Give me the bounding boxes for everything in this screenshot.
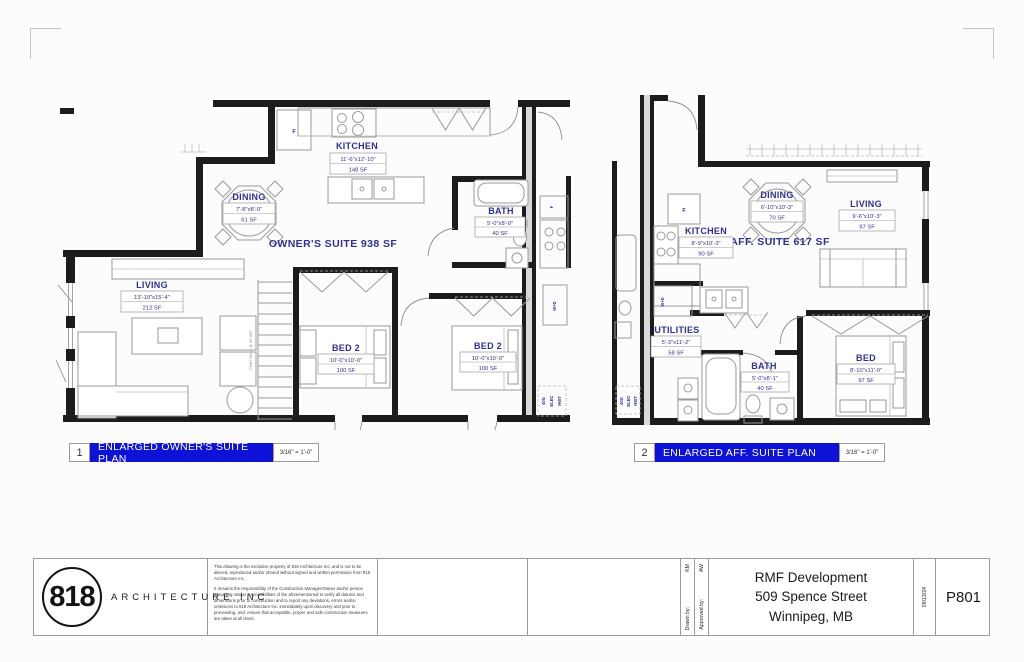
- svg-text:70 SF: 70 SF: [769, 216, 785, 222]
- sheet-number: P801: [946, 589, 981, 606]
- svg-text:KITCHEN: KITCHEN: [336, 141, 378, 151]
- svg-text:ELEC: ELEC: [549, 395, 554, 406]
- plan2-scale: 3/16" = 1'-0": [839, 443, 885, 462]
- room-label-kitchen: KITCHEN 11'-6"x12'-10" 148 SF: [330, 141, 386, 174]
- project-name: RMF Development: [755, 568, 868, 588]
- room-label-living: LIVING 13'-10"x15'-4" 212 SF: [121, 280, 183, 312]
- issue-date: 09/13/24: [922, 587, 928, 607]
- svg-text:KITCHEN: KITCHEN: [685, 226, 727, 236]
- svg-text:10'-0"x10'-0": 10'-0"x10'-0": [330, 358, 362, 364]
- suite-label: AFF. SUITE 617 SF: [730, 236, 830, 248]
- room-label-dining: DINING 6'-10"x10'-3" 70 SF: [751, 190, 803, 222]
- approved-by-cell: AW Approved by:: [695, 559, 709, 635]
- plan2-title: ENLARGED AFF. SUITE PLAN: [655, 443, 839, 462]
- plan1-title: ENLARGED OWNER'S SUITE PLAN: [90, 443, 273, 462]
- svg-text:10'-0"x10'-0": 10'-0"x10'-0": [472, 356, 504, 362]
- corner-mark-top-right: [963, 28, 994, 59]
- svg-text:F: F: [549, 205, 554, 208]
- revision-cell-1: [378, 559, 528, 635]
- svg-text:148 SF: 148 SF: [349, 168, 368, 174]
- svg-text:97 SF: 97 SF: [858, 378, 874, 384]
- svg-text:W+D: W+D: [552, 301, 557, 310]
- svg-text:40 SF: 40 SF: [492, 231, 508, 237]
- svg-text:212 SF: 212 SF: [143, 306, 162, 312]
- date-cell: 09/13/24: [914, 559, 936, 635]
- svg-text:100 SF: 100 SF: [337, 368, 356, 374]
- owner-suite-plan-drawing: PONY WALL @ 36" AFF: [55, 85, 580, 430]
- project-address: 509 Spence Street: [755, 587, 867, 607]
- plan1-number: 1: [69, 443, 90, 462]
- project-city: Winnipeg, MB: [769, 607, 853, 627]
- svg-text:5'-0"x8'-1": 5'-0"x8'-1": [752, 376, 778, 382]
- room-label-kitchen: KITCHEN 8'-9"x10'-3" 90 SF: [679, 226, 733, 258]
- project-info-cell: RMF Development 509 Spence Street Winnip…: [709, 559, 914, 635]
- title-block: 818 ARCHITECTURE INC This drawing is the…: [33, 558, 990, 636]
- svg-text:40G: 40G: [619, 397, 624, 405]
- room-label-dining: DINING 7'-8"x8'-0" 61 SF: [223, 192, 275, 224]
- svg-text:90 SF: 90 SF: [698, 252, 714, 258]
- svg-text:6'-10"x10'-3": 6'-10"x10'-3": [761, 205, 793, 211]
- sheet-number-cell: P801: [936, 559, 991, 635]
- svg-text:5'-3"x11'-2": 5'-3"x11'-2": [662, 340, 691, 346]
- balcony-railing: [746, 144, 922, 156]
- plan2-title-bar: 2 ENLARGED AFF. SUITE PLAN 3/16" = 1'-0": [634, 443, 885, 462]
- svg-text:LIVING: LIVING: [850, 199, 882, 209]
- firm-logo-cell: 818 ARCHITECTURE INC: [34, 559, 208, 635]
- svg-text:97 SF: 97 SF: [859, 225, 875, 231]
- svg-text:8'-9"x10'-3": 8'-9"x10'-3": [691, 241, 720, 247]
- drawn-by-value: KM: [685, 564, 691, 572]
- svg-text:BED 2: BED 2: [474, 341, 502, 351]
- svg-text:DINING: DINING: [760, 190, 793, 200]
- approved-by-value: AW: [699, 564, 705, 572]
- svg-text:HWT: HWT: [633, 396, 638, 406]
- svg-text:LIVING: LIVING: [136, 280, 168, 290]
- approved-by-label: Approved by:: [699, 599, 705, 630]
- disclaimer-paragraph-1: This drawing is the exclusive property o…: [214, 564, 371, 582]
- svg-text:BATH: BATH: [488, 206, 514, 216]
- svg-text:BATH: BATH: [751, 361, 777, 371]
- disclaimer-paragraph-2: It remains the responsibility of the Con…: [214, 586, 371, 622]
- svg-text:W+D: W+D: [660, 297, 665, 306]
- svg-text:40 SF: 40 SF: [757, 386, 773, 392]
- svg-text:BED: BED: [856, 353, 876, 363]
- drawn-by-label: Drawn by:: [685, 607, 691, 630]
- svg-text:7'-8"x8'-0": 7'-8"x8'-0": [236, 207, 262, 213]
- svg-text:58 SF: 58 SF: [668, 351, 684, 357]
- revision-cell-2: [528, 559, 681, 635]
- room-label-bath: BATH 5'-0"x8'-1" 40 SF: [741, 361, 789, 392]
- drawing-sheet: PONY WALL @ 36" AFF: [0, 0, 1024, 662]
- room-label-utilities: UTILITIES 5'-3"x11'-2" 58 SF: [651, 325, 701, 357]
- corner-mark-top-left: [30, 28, 61, 59]
- adjacent-unit-fragments: [615, 235, 636, 338]
- disclaimer-cell: This drawing is the exclusive property o…: [208, 559, 378, 635]
- svg-text:BED 2: BED 2: [332, 343, 360, 353]
- plan1-title-bar: 1 ENLARGED OWNER'S SUITE PLAN 3/16" = 1'…: [69, 443, 319, 462]
- room-label-living: LIVING 9'-6"x10'-3" 97 SF: [839, 199, 895, 231]
- svg-text:13'-10"x15'-4": 13'-10"x15'-4": [134, 295, 170, 301]
- svg-text:HWT: HWT: [557, 396, 562, 406]
- svg-text:8'-10"x11'-0": 8'-10"x11'-0": [850, 368, 882, 374]
- suite-label: OWNER'S SUITE 938 SF: [269, 238, 398, 250]
- svg-text:100 SF: 100 SF: [479, 366, 498, 372]
- svg-text:DINING: DINING: [232, 192, 265, 202]
- svg-text:9'-6"x10'-3": 9'-6"x10'-3": [852, 214, 881, 220]
- aff-suite-plan-drawing: AFF. SUITE 617 SF DINING 6'-10"x10'-3" 7…: [605, 85, 945, 430]
- svg-text:5'-0"x8'-0": 5'-0"x8'-0": [487, 221, 513, 227]
- svg-text:ELEC: ELEC: [626, 395, 631, 406]
- room-label-bath: BATH 5'-0"x8'-0" 40 SF: [475, 206, 525, 237]
- plan2-number: 2: [634, 443, 655, 462]
- drawn-by-cell: KM Drawn by:: [681, 559, 695, 635]
- firm-logo: 818: [42, 567, 102, 627]
- svg-text:40G: 40G: [541, 397, 546, 405]
- svg-text:UTILITIES: UTILITIES: [654, 325, 699, 335]
- svg-text:11'-6"x12'-10": 11'-6"x12'-10": [340, 157, 375, 163]
- svg-text:61 SF: 61 SF: [241, 218, 257, 224]
- plan1-scale: 3/16" = 1'-0": [273, 443, 319, 462]
- pony-wall-note: PONY WALL @ 36" AFF: [249, 330, 253, 370]
